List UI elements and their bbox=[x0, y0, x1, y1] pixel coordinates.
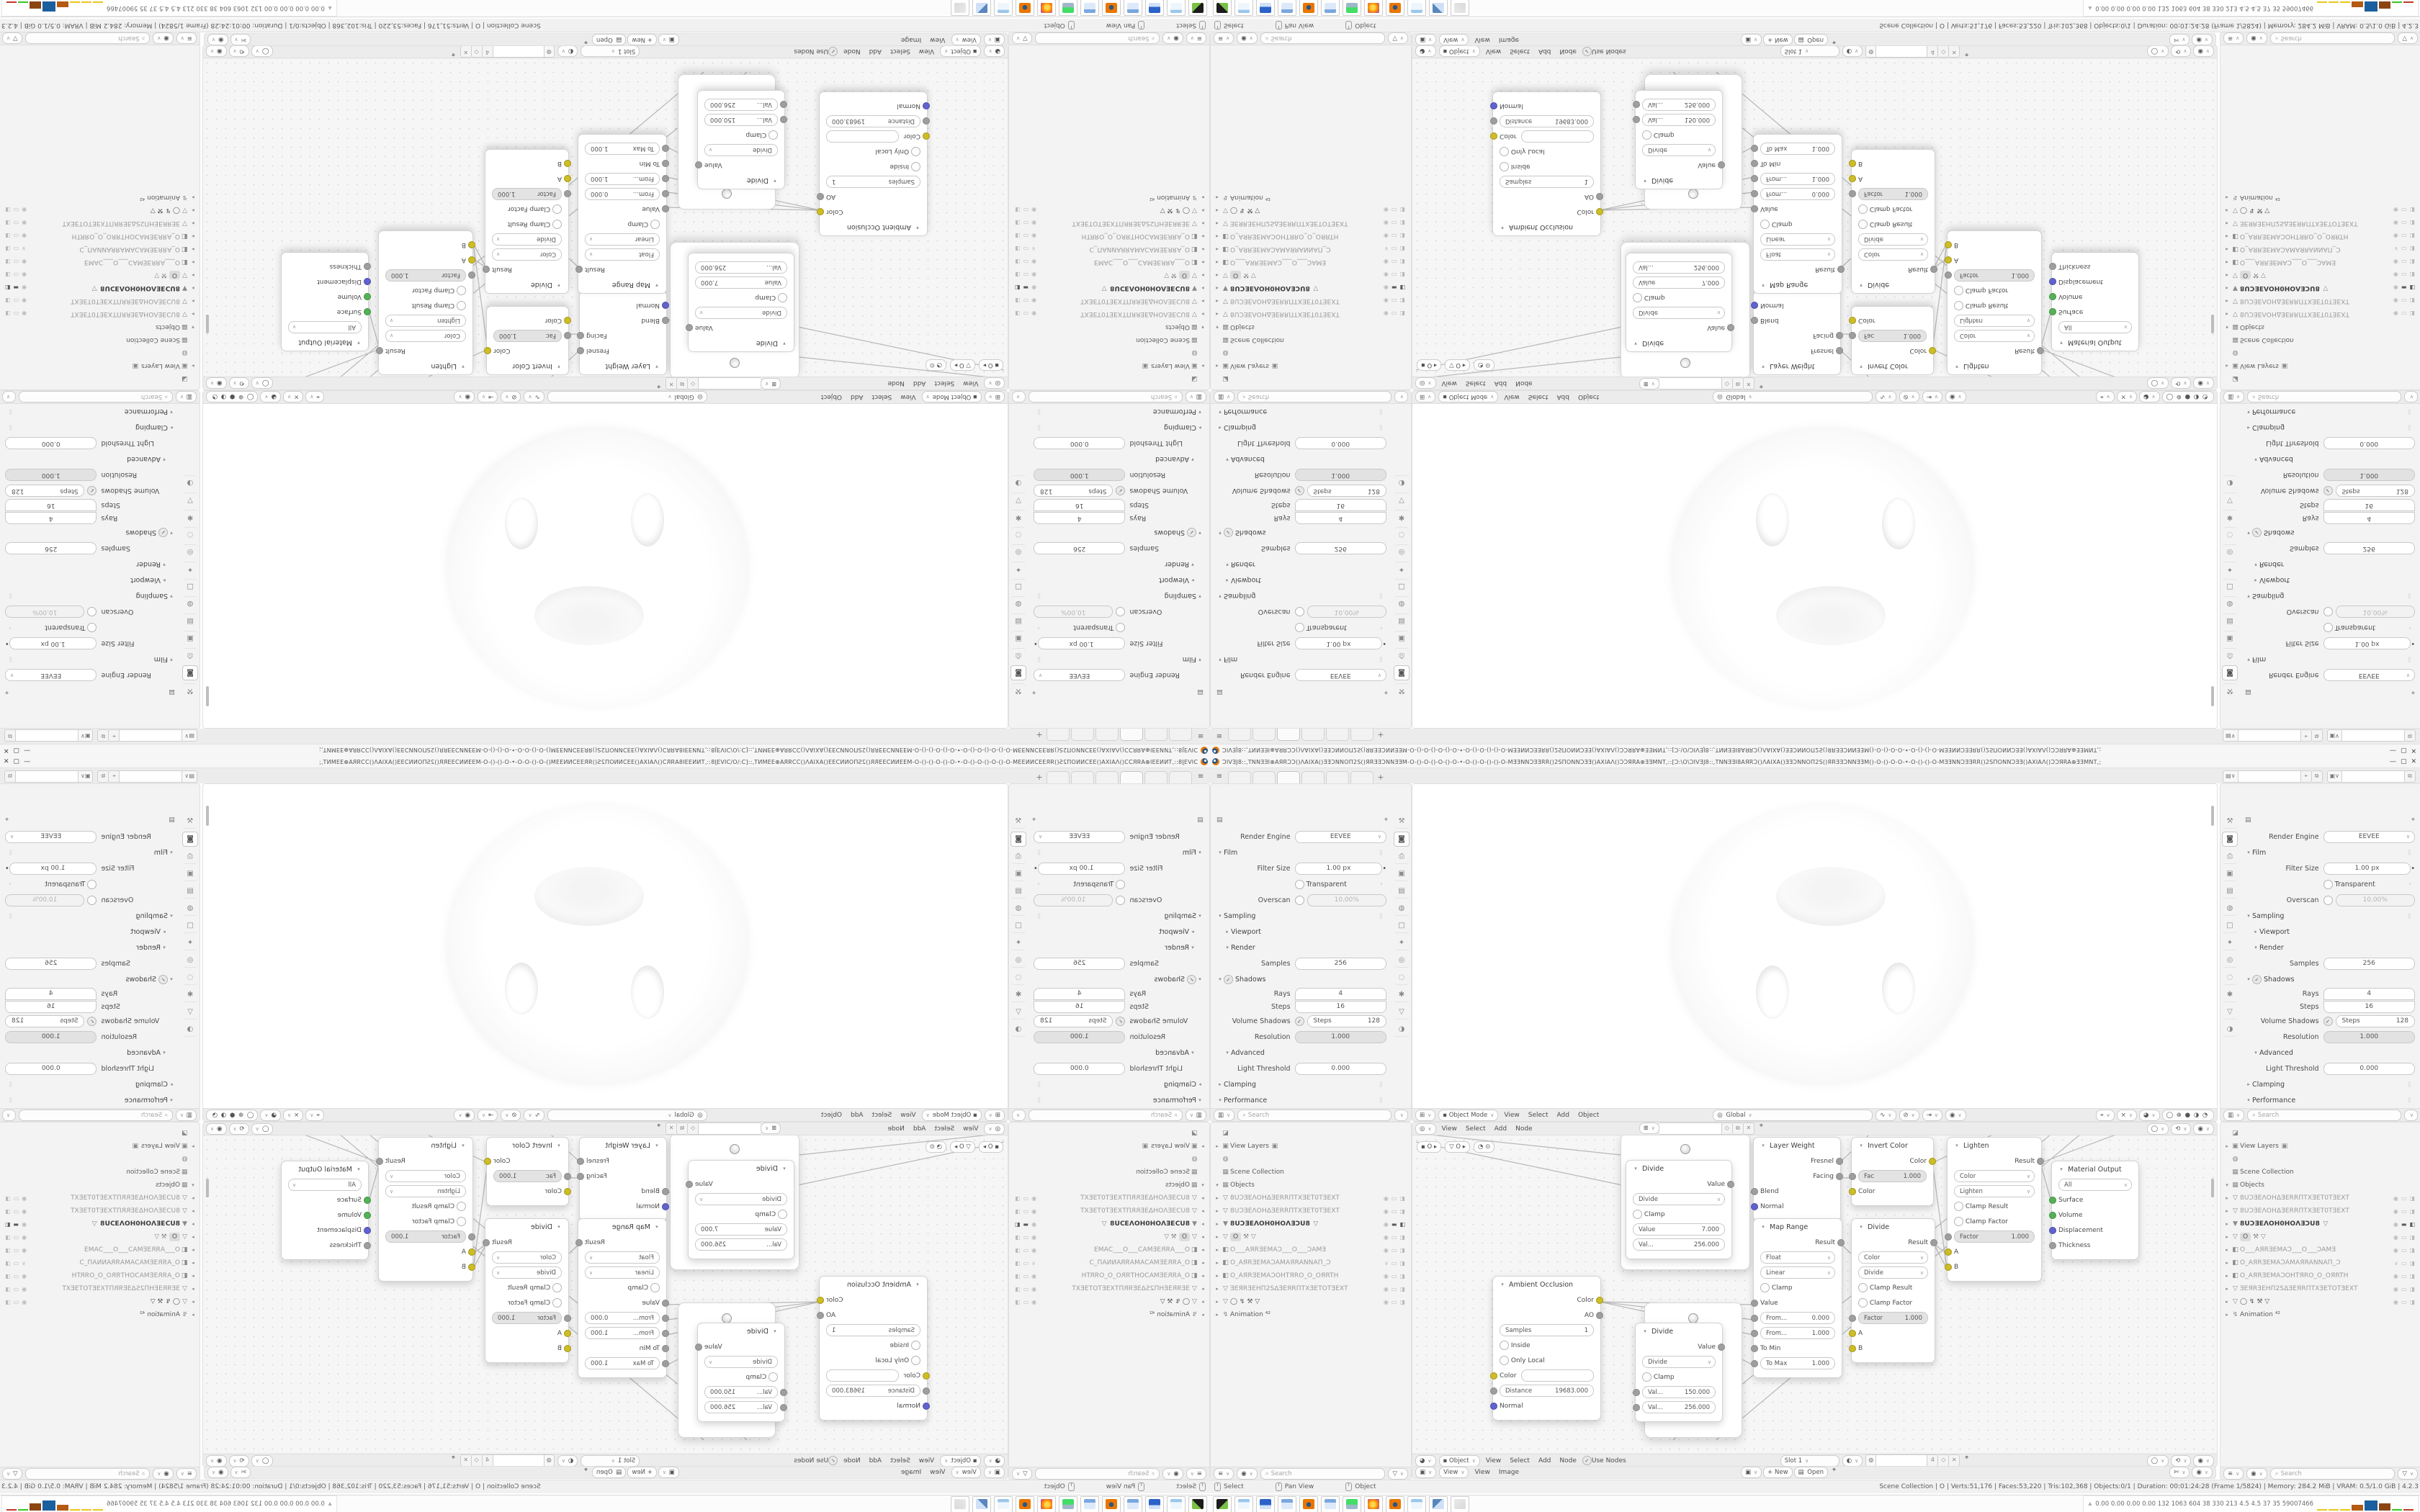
section-label[interactable]: Film bbox=[1183, 849, 1196, 857]
outliner-row[interactable]: ▸▣View Layers ▣ bbox=[2, 359, 197, 372]
node-dropdown[interactable]: Linear bbox=[585, 1266, 660, 1279]
node-menu-add[interactable]: Add bbox=[1536, 48, 1554, 55]
hide-icon[interactable]: ◉ bbox=[2393, 207, 2398, 214]
workspace-tab[interactable] bbox=[1228, 729, 1251, 741]
drive-app-icon[interactable] bbox=[1188, 0, 1207, 17]
solid-icon[interactable]: ● bbox=[2185, 1112, 2192, 1119]
outliner-row[interactable]: ▸▼8UƆƎEΛOH0HOΛƎƆU8 ▽◉▬◧ bbox=[1214, 282, 1408, 294]
input-socket[interactable] bbox=[2049, 294, 2056, 301]
docs-app-icon[interactable] bbox=[972, 1496, 991, 1512]
material-datablock[interactable]: ≣◇⧉✕ ⌖ bbox=[654, 377, 781, 390]
viewport-scrollbar[interactable] bbox=[2211, 686, 2214, 706]
node-value-field[interactable]: Distance19683.000 bbox=[826, 115, 920, 127]
outliner-search-input[interactable]: ⌕Search bbox=[1035, 33, 1160, 45]
expand-icon[interactable]: ▸ bbox=[1199, 1234, 1206, 1240]
node-checkbox[interactable] bbox=[1760, 1283, 1770, 1292]
data-icon[interactable]: ▽ bbox=[1394, 1005, 1409, 1020]
node-dropdown[interactable]: All bbox=[288, 1179, 362, 1191]
scene-icon[interactable]: ▤ bbox=[2223, 884, 2237, 899]
camera-icon[interactable]: ◨ bbox=[2409, 298, 2415, 305]
monitor-icon[interactable]: ▭ bbox=[1391, 246, 1397, 253]
node-canvas[interactable]: ▪ O ▸▽ O ▸◔ ⊙▾DivideValueDivide ClampVal… bbox=[1412, 1135, 2217, 1452]
outliner-filter-icon[interactable]: ▽ bbox=[2, 1468, 22, 1480]
camera-icon[interactable]: ◨ bbox=[2409, 1247, 2415, 1254]
workspace-tab[interactable] bbox=[1071, 729, 1094, 741]
node-material-output[interactable]: ▾Material OutputAllSurfaceVolumeDisplace… bbox=[2051, 252, 2139, 351]
display-mode-icon[interactable]: ≡ bbox=[2223, 33, 2244, 45]
output-socket[interactable] bbox=[483, 266, 490, 274]
monitor-icon[interactable]: ▭ bbox=[14, 1273, 19, 1279]
outline-icon[interactable]: ◯ bbox=[245, 1112, 254, 1119]
monitor-icon[interactable]: ▭ bbox=[1391, 1247, 1397, 1254]
node-checkbox[interactable] bbox=[650, 1283, 660, 1292]
node-checkbox[interactable] bbox=[552, 220, 562, 229]
display-mode-icon[interactable]: ≡ bbox=[1214, 33, 1234, 45]
output-socket[interactable] bbox=[1836, 333, 1843, 340]
node-editor-scrollbar[interactable] bbox=[2211, 1179, 2214, 1197]
section-label[interactable]: Clamping bbox=[1224, 1081, 1256, 1089]
expand-icon[interactable]: ▸ bbox=[189, 298, 197, 304]
monitor-icon[interactable]: ▭ bbox=[14, 233, 19, 240]
output-socket[interactable] bbox=[1836, 1173, 1843, 1180]
notepad-app-icon[interactable] bbox=[1234, 0, 1253, 17]
render-engine-dropdown[interactable]: EEVEE bbox=[1034, 670, 1125, 682]
unlink-button[interactable]: ✕ bbox=[1744, 377, 1754, 390]
output-socket[interactable] bbox=[1929, 348, 1936, 355]
monitor-icon[interactable]: ▭ bbox=[2401, 1208, 2407, 1215]
section-label[interactable]: Film bbox=[1224, 849, 1237, 857]
hide-icon[interactable]: ◉ bbox=[1031, 220, 1036, 227]
tool-icon[interactable]: ⚒ bbox=[1011, 814, 1026, 829]
expand-icon[interactable]: ▸ bbox=[1214, 272, 1221, 278]
input-socket[interactable] bbox=[1751, 191, 1758, 198]
expand-icon[interactable]: ▸ bbox=[189, 311, 197, 317]
node-value-field[interactable]: Fac1.000 bbox=[493, 1170, 562, 1182]
camera-icon[interactable]: ◨ bbox=[5, 298, 11, 305]
node-menu-node[interactable]: Node bbox=[841, 48, 864, 55]
node-checkbox[interactable] bbox=[911, 162, 920, 171]
node-dropdown[interactable]: Divide bbox=[1633, 1193, 1725, 1205]
workspace-tab[interactable] bbox=[1071, 771, 1094, 783]
node-value-field[interactable]: From...1.000 bbox=[585, 173, 660, 185]
constraint-icon[interactable]: ◌ bbox=[1011, 971, 1026, 985]
node-menu-view[interactable]: View bbox=[1439, 1125, 1460, 1133]
value-field[interactable]: 1.00 px bbox=[2323, 863, 2411, 875]
workspace-tab[interactable] bbox=[1047, 771, 1070, 783]
camera-icon[interactable]: ◨ bbox=[1399, 220, 1405, 227]
editor-type-icon[interactable]: ◕ bbox=[1415, 46, 1436, 58]
hide-icon[interactable]: ◉ bbox=[22, 207, 27, 214]
outliner-row[interactable]: ▸◧O_AЯRƎEMAƆAMAЯRANNAП_Ɔ∨▭◨ bbox=[1214, 1256, 1408, 1269]
properties-search-input[interactable]: ⌕Search bbox=[1237, 392, 1391, 403]
checkbox[interactable] bbox=[2323, 896, 2333, 905]
calculator-app-icon[interactable] bbox=[1124, 1496, 1142, 1512]
value-field[interactable]: 4 bbox=[1034, 513, 1125, 525]
checkbox[interactable] bbox=[1295, 608, 1304, 617]
node-checkbox[interactable] bbox=[1954, 1202, 1963, 1211]
node-divide[interactable]: ▾DivideValueDivide ClampVal...150.000Val… bbox=[1635, 1323, 1723, 1422]
outliner-mode-icon[interactable]: ◉ bbox=[1162, 1468, 1183, 1480]
outliner-row[interactable]: ▸▽O ⚒ ▽◉▭◨ bbox=[2223, 269, 2418, 282]
expand-icon[interactable]: ▸ bbox=[1199, 1273, 1206, 1279]
snap-mode-icon[interactable]: ⇥ bbox=[478, 392, 498, 403]
close-button[interactable]: ✕ bbox=[2411, 747, 2416, 754]
input-socket[interactable] bbox=[1751, 161, 1758, 168]
expand-icon[interactable]: ▸ bbox=[1214, 1143, 1221, 1149]
matball-icon[interactable]: ◐ bbox=[557, 1455, 578, 1467]
value-field[interactable]: 10.00% bbox=[5, 894, 84, 906]
scene-pin-button[interactable]: ⌖ bbox=[2301, 729, 2312, 742]
snap-circle-icon[interactable]: ◯ bbox=[2147, 378, 2169, 390]
node-value-field[interactable]: Samples1 bbox=[826, 176, 920, 188]
properties-options-icon[interactable] bbox=[2, 1110, 16, 1121]
value-field[interactable]: 10.00% bbox=[2336, 606, 2415, 618]
node-material-output[interactable]: ▾Material OutputAllSurfaceVolumeDisplace… bbox=[2051, 1161, 2139, 1260]
close-button[interactable]: ✕ bbox=[4, 747, 9, 754]
node-dropdown[interactable]: Divide bbox=[704, 1356, 778, 1368]
expand-icon[interactable]: ▸ bbox=[1214, 1312, 1221, 1318]
expand-icon[interactable]: ▸ bbox=[1199, 298, 1206, 304]
render-icon[interactable]: ◙ bbox=[2222, 832, 2238, 847]
transform-orientation-dropdown[interactable]: ◎ Global bbox=[1713, 392, 1873, 403]
pin-icon[interactable]: ⌖ bbox=[654, 1122, 665, 1135]
object-icon[interactable]: □ bbox=[1011, 919, 1026, 933]
camera-icon[interactable]: ◧ bbox=[1399, 285, 1405, 292]
node-dropdown[interactable]: Divide bbox=[704, 144, 778, 156]
pivot-icon[interactable]: ◉ bbox=[454, 392, 475, 403]
node-dropdown[interactable]: All bbox=[2058, 321, 2132, 333]
input-socket[interactable] bbox=[1490, 118, 1497, 125]
outliner-row[interactable]: ▸◧O_AЯRƎEMAƆAMAЯRANNAП_Ɔ∨▭◨ bbox=[1012, 1256, 1206, 1269]
animate-dot-icon[interactable]: • bbox=[1034, 865, 1038, 873]
outliner-row[interactable]: ▸▽O ⚒ ▽◉▭◨ bbox=[1012, 269, 1206, 282]
overlay-icon[interactable]: ⨯ bbox=[2117, 1110, 2137, 1121]
expand-icon[interactable]: ▸ bbox=[189, 220, 197, 226]
camera-icon[interactable]: ◨ bbox=[1399, 259, 1405, 266]
outliner-row[interactable]: ▾▦Objects bbox=[1012, 1179, 1206, 1192]
camera-icon[interactable]: ◨ bbox=[5, 1273, 11, 1279]
expand-icon[interactable]: ▸ bbox=[1199, 1286, 1206, 1292]
expand-icon[interactable]: ▾ bbox=[189, 1182, 197, 1188]
node-dropdown[interactable]: Divide bbox=[695, 307, 787, 319]
pivot-icon[interactable]: ◉ bbox=[1945, 1110, 1966, 1121]
shadows-checkbox[interactable]: ✓ bbox=[158, 975, 168, 984]
outliner-row[interactable]: ▸▣View Layers ▣ bbox=[1214, 1140, 1408, 1153]
outliner-row[interactable]: ▸◧O___AЯRƎEMAƆ___O___ƆAMƎ◉▭◨ bbox=[2, 256, 197, 269]
checkbox[interactable]: ✓ bbox=[1116, 487, 1125, 496]
expand-icon[interactable]: ▸ bbox=[1199, 220, 1206, 226]
node-value-field[interactable]: From...1.000 bbox=[1760, 173, 1835, 185]
overlay-icon[interactable]: ◉ bbox=[206, 46, 227, 58]
outliner-row[interactable]: ▸▣View Layers ▣ bbox=[2223, 1140, 2418, 1153]
monitor-icon[interactable]: ▬ bbox=[1391, 285, 1397, 292]
value-field[interactable]: 0.000 bbox=[1295, 438, 1386, 450]
expand-icon[interactable]: ▸ bbox=[1199, 233, 1206, 239]
output-socket[interactable] bbox=[1727, 325, 1734, 332]
checkbox[interactable] bbox=[1295, 880, 1304, 889]
node-value-field[interactable]: Val...256.000 bbox=[695, 1238, 787, 1251]
node-checkbox[interactable] bbox=[1642, 1372, 1652, 1382]
outliner-row[interactable]: ▸◧O___AЯRƎEMAƆ___O___ƆAMƎ◉▭◨ bbox=[2223, 256, 2418, 269]
material-icon[interactable]: ◑ bbox=[1011, 475, 1026, 490]
output-socket[interactable] bbox=[1929, 1158, 1936, 1165]
input-socket[interactable] bbox=[1751, 1203, 1758, 1210]
expand-icon[interactable]: ▸ bbox=[1214, 259, 1221, 265]
editor-type-icon[interactable]: ▣ bbox=[1415, 34, 1436, 45]
material-name-field[interactable] bbox=[698, 377, 761, 390]
docs-app-icon[interactable] bbox=[1429, 1496, 1448, 1512]
outliner-search-input[interactable]: ⌕Search bbox=[1260, 33, 1386, 45]
hide-icon[interactable]: ◉ bbox=[1384, 1234, 1389, 1241]
close-button[interactable]: ✕ bbox=[2411, 758, 2416, 765]
image-menu-image[interactable]: Image bbox=[898, 1469, 924, 1476]
node-divide[interactable]: ▾DivideValueDivide ClampVal...150.000Val… bbox=[697, 90, 785, 189]
section-label[interactable]: Sampling bbox=[136, 593, 168, 600]
outliner-row[interactable]: ◍ bbox=[1012, 346, 1206, 359]
outliner-row[interactable]: ▸▽◯ ↯ ⚒ ▽◉▭◨ bbox=[1012, 204, 1206, 217]
expand-icon[interactable]: ▸ bbox=[2223, 207, 2231, 213]
viewport-menu-view[interactable]: View bbox=[1501, 1112, 1522, 1119]
node-dropdown[interactable]: Lighten bbox=[1954, 1185, 2035, 1197]
display-mode-icon[interactable]: ≡ bbox=[1186, 33, 1206, 45]
outliner-row[interactable]: ▾▦Objects bbox=[1214, 1179, 1408, 1192]
hide-icon[interactable]: ◉ bbox=[22, 1234, 27, 1241]
hide-icon[interactable]: ◉ bbox=[22, 1286, 27, 1292]
section-label[interactable]: Viewport bbox=[1231, 928, 1261, 936]
unlink-button[interactable]: ✕ bbox=[1949, 1454, 1960, 1467]
monitor-icon[interactable]: ▭ bbox=[2401, 298, 2407, 305]
object-mode-dropdown[interactable]: ▪ Object Mode bbox=[922, 1110, 982, 1121]
viewport-menu-add[interactable]: Add bbox=[1554, 1112, 1572, 1119]
data-icon[interactable]: ▽ bbox=[183, 492, 197, 507]
notepad-app-icon[interactable] bbox=[1167, 0, 1186, 17]
hide-icon[interactable]: ◉ bbox=[1031, 233, 1036, 240]
xray-icon[interactable]: ◕ bbox=[2139, 1110, 2160, 1121]
monitor-icon[interactable]: ▭ bbox=[14, 1286, 19, 1292]
node-value-field[interactable]: From...1.000 bbox=[585, 1327, 660, 1339]
outliner-search-input[interactable]: ⌕Search bbox=[2270, 33, 2396, 45]
image-icon[interactable]: ▣ bbox=[1741, 34, 1762, 45]
outliner-search-input[interactable]: ⌕Search bbox=[25, 33, 151, 45]
section-label[interactable]: Shadows bbox=[2262, 529, 2294, 537]
monitor-icon[interactable]: ▭ bbox=[2401, 311, 2407, 318]
render-engine-dropdown[interactable]: EEVEE bbox=[1295, 831, 1386, 843]
animate-dot-icon[interactable]: • bbox=[1380, 881, 1384, 887]
node-checkbox[interactable] bbox=[1500, 1341, 1509, 1350]
expand-icon[interactable]: ▸ bbox=[2223, 311, 2231, 317]
maximize-button[interactable]: ▢ bbox=[14, 747, 20, 754]
outliner-row[interactable]: ▸◧O_AЯRƎEMAƆOHTЯRO_O_OЯRTH◉▭◨ bbox=[2, 1269, 197, 1282]
outliner-search-input[interactable]: ⌕Search bbox=[2270, 1468, 2396, 1480]
expand-icon[interactable]: ▸ bbox=[2223, 1195, 2231, 1201]
outliner-row[interactable]: ▦Scene Collection bbox=[2, 333, 197, 346]
output-socket[interactable] bbox=[1836, 348, 1843, 355]
xray-icon[interactable]: ◕ bbox=[260, 1110, 281, 1121]
scene-selector[interactable]: ▤∨⌖⧉ bbox=[97, 771, 197, 782]
input-socket[interactable] bbox=[564, 1173, 571, 1180]
snap-mode-icon[interactable]: ⇥ bbox=[1922, 392, 1942, 403]
input-socket[interactable] bbox=[364, 309, 371, 316]
node-lighten[interactable]: ▾LightenResultColorLighten Clamp Result … bbox=[1947, 230, 2042, 375]
outliner-row[interactable]: ▸▽8UƆƎEΛOHΔƎERRПTXƎET0TƎEXT◉▭◨ bbox=[1214, 1205, 1408, 1218]
input-socket[interactable] bbox=[1945, 272, 1952, 279]
object-icon[interactable]: □ bbox=[183, 579, 197, 593]
scene-pin-button[interactable]: ⌖ bbox=[2301, 770, 2312, 783]
collapsed-panel-chip[interactable]: ▽ O ▸ bbox=[950, 359, 975, 371]
node-canvas[interactable]: ▪ O ▸▽ O ▸◔ ⊙▾DivideValueDivide ClampVal… bbox=[203, 1135, 1008, 1452]
world-icon[interactable]: ◍ bbox=[183, 901, 197, 916]
outliner-row[interactable]: ▸▽ƎEЯRƎEHП2SΔƎEЯRПTXƎETOTƎEXT◉▭◨ bbox=[1214, 217, 1408, 230]
expand-icon[interactable]: ▸ bbox=[1214, 194, 1221, 200]
camera-icon[interactable]: ◨ bbox=[2409, 311, 2415, 318]
outliner-row[interactable]: ▸◧O___AЯRƎEMAƆ___O___ƆAMƎ◉▭◨ bbox=[1012, 1243, 1206, 1256]
node-checkbox[interactable] bbox=[1858, 1298, 1868, 1308]
floppy64-app-icon[interactable] bbox=[1256, 1496, 1275, 1512]
hide-icon[interactable]: ◉ bbox=[2393, 1208, 2398, 1215]
camera-icon[interactable]: ◨ bbox=[1399, 1260, 1405, 1266]
outliner-mode-icon[interactable]: ◉ bbox=[2246, 1468, 2267, 1480]
solid-icon[interactable]: ● bbox=[2185, 394, 2192, 401]
shadows-checkbox[interactable]: ✓ bbox=[2252, 975, 2262, 984]
monitor-icon[interactable]: ▭ bbox=[14, 1208, 19, 1215]
monitor-app-icon[interactable] bbox=[1059, 1496, 1077, 1512]
monitor-icon[interactable]: ▭ bbox=[14, 207, 19, 214]
checkbox[interactable]: ✓ bbox=[2323, 487, 2333, 496]
blender-app-icon[interactable] bbox=[1016, 0, 1034, 17]
monitor-icon[interactable]: ▭ bbox=[2401, 220, 2407, 227]
section-label[interactable]: Sampling bbox=[2252, 912, 2284, 920]
expand-icon[interactable]: ▸ bbox=[2223, 1299, 2231, 1305]
camera-icon[interactable]: ◧ bbox=[5, 1221, 11, 1228]
monitor-icon[interactable]: ▭ bbox=[1023, 1299, 1029, 1305]
monitor-icon[interactable]: ▭ bbox=[1391, 233, 1397, 240]
add-workspace-button[interactable]: + bbox=[1375, 772, 1386, 783]
node-value-field[interactable]: Val...150.000 bbox=[704, 114, 778, 126]
properties-filter-icon[interactable]: ▥ bbox=[176, 1110, 197, 1121]
use-nodes-toggle[interactable]: ✓Use Nodes bbox=[1582, 1456, 1626, 1465]
output-socket[interactable] bbox=[817, 1312, 824, 1319]
input-socket[interactable] bbox=[1945, 257, 1952, 264]
section-label[interactable]: Render bbox=[136, 944, 161, 952]
expand-icon[interactable]: ▸ bbox=[189, 1221, 197, 1227]
hide-icon[interactable]: ◉ bbox=[1031, 1247, 1036, 1254]
input-socket[interactable] bbox=[780, 1404, 787, 1411]
input-socket[interactable] bbox=[1751, 1330, 1758, 1337]
expand-icon[interactable]: ▸ bbox=[189, 207, 197, 213]
scene-copy-button[interactable]: ⧉ bbox=[2312, 770, 2323, 783]
camera-icon[interactable]: ◨ bbox=[1399, 1208, 1405, 1215]
node-value-field[interactable]: Val...256.000 bbox=[704, 1401, 778, 1413]
color-swatch-field[interactable] bbox=[826, 130, 900, 143]
workspace-tab[interactable] bbox=[1169, 729, 1192, 741]
camera-icon[interactable]: ◨ bbox=[1399, 1234, 1405, 1241]
outliner-row[interactable]: ▸◧O_AЯRƎEMAƆAMAЯRANNAП_Ɔ∨▭◨ bbox=[1214, 243, 1408, 256]
expand-icon[interactable]: ▸ bbox=[1214, 363, 1221, 369]
outliner-row[interactable]: ▸◧O_AЯRƎEMAƆAMAЯRANNAП_Ɔ∨▭◨ bbox=[2223, 1256, 2418, 1269]
shader-mode-dropdown[interactable]: ▪ Object bbox=[940, 46, 981, 58]
hide-icon[interactable]: ◉ bbox=[22, 259, 27, 266]
object-icon[interactable]: □ bbox=[1394, 919, 1409, 933]
outliner-row[interactable]: ▸▽8UƆƎEΛOHΔƎERRПTXƎET0TƎEXT◉▭◨ bbox=[1012, 1192, 1206, 1205]
key-value-field[interactable]: Steps128 bbox=[1307, 485, 1386, 498]
hide-icon[interactable]: ◉ bbox=[1384, 233, 1389, 240]
collapsed-panel-chip[interactable]: ◔ ⊙ bbox=[1474, 359, 1494, 371]
firefox-app-icon[interactable] bbox=[1364, 0, 1383, 17]
image-menu-view[interactable]: View bbox=[927, 1469, 948, 1476]
hide-icon[interactable]: ◉ bbox=[1384, 1247, 1389, 1254]
camera-icon[interactable]: ◧ bbox=[2409, 285, 2415, 292]
value-field[interactable]: 10.00% bbox=[1034, 606, 1113, 618]
outliner-row[interactable]: ▸▽8UƆƎEΛOHΔƎERRПTXƎET0TƎEXT◉▭◨ bbox=[2, 1205, 197, 1218]
material-datablock[interactable]: ◍4◇✕ ⌖ bbox=[449, 1454, 555, 1467]
node-checkbox[interactable] bbox=[911, 147, 920, 156]
input-socket[interactable] bbox=[1849, 318, 1856, 325]
node-dropdown[interactable]: Color bbox=[385, 330, 466, 342]
expand-icon[interactable]: ▸ bbox=[1214, 1247, 1221, 1253]
monitor-icon[interactable]: ▭ bbox=[14, 1247, 19, 1254]
pin-icon[interactable]: ⌖ bbox=[1960, 1454, 1971, 1467]
blender-app-icon[interactable] bbox=[1102, 1496, 1121, 1512]
value-field[interactable]: 10.00% bbox=[1307, 894, 1386, 906]
calculator-app-icon[interactable] bbox=[1321, 0, 1340, 17]
outliner-search-input[interactable]: ⌕Search bbox=[1260, 1468, 1386, 1480]
section-label[interactable]: Render bbox=[2259, 944, 2284, 952]
overlay-icon[interactable]: ⨯ bbox=[283, 392, 303, 403]
animate-dot-icon[interactable]: • bbox=[8, 625, 12, 631]
outliner-row[interactable]: ▸▽◯ ↯ ⚒ ▽◉▭◨ bbox=[1214, 204, 1408, 217]
pin-icon[interactable]: ⌖ bbox=[449, 1454, 460, 1467]
overlay-icon[interactable]: ◉ bbox=[207, 34, 228, 45]
notepad-app-icon[interactable] bbox=[1407, 0, 1426, 17]
maximize-button[interactable]: ▢ bbox=[2401, 747, 2407, 754]
hide-icon[interactable]: ◉ bbox=[1031, 1299, 1036, 1305]
snap-toggle-icon[interactable]: ⊘ bbox=[1899, 392, 1919, 403]
snap-circle-icon[interactable]: ◯ bbox=[251, 1123, 274, 1135]
shader-mode-dropdown[interactable]: ▪ Object bbox=[1439, 46, 1480, 58]
input-socket[interactable] bbox=[1849, 191, 1856, 198]
node-checkbox[interactable] bbox=[552, 204, 562, 214]
camera-icon[interactable]: ◨ bbox=[2409, 259, 2415, 266]
scene-pin-button[interactable]: ⌖ bbox=[108, 770, 119, 783]
camera-icon[interactable]: ◨ bbox=[1015, 246, 1021, 253]
node-value-field[interactable]: Samples1 bbox=[1500, 1324, 1594, 1336]
properties-search-input[interactable]: ⌕Search bbox=[1237, 1110, 1391, 1121]
outliner-row[interactable]: ▾▦Objects bbox=[2, 1179, 197, 1192]
outliner-filter-icon[interactable]: ▽ bbox=[2398, 33, 2418, 45]
viewlayer-copy-button[interactable]: ⧉ bbox=[4, 770, 15, 783]
node-checkbox[interactable] bbox=[1858, 220, 1868, 229]
section-label[interactable]: Advanced bbox=[1231, 456, 1265, 464]
outliner-row[interactable]: ◍ bbox=[2223, 346, 2418, 359]
node-invert-color[interactable]: ▾Invert ColorColorFac1.000Color bbox=[486, 1137, 569, 1206]
node-dropdown[interactable]: Color bbox=[492, 1251, 562, 1264]
node-menu-node[interactable]: Node bbox=[1512, 380, 1536, 387]
physics-icon[interactable]: ◎ bbox=[1011, 544, 1026, 559]
render-engine-dropdown[interactable]: EEVEE bbox=[1295, 670, 1386, 682]
scene-selector[interactable]: ▤∨⌖⧉ bbox=[2223, 771, 2322, 782]
output-socket[interactable] bbox=[577, 1158, 584, 1165]
output-socket[interactable] bbox=[686, 1181, 693, 1188]
outliner-row[interactable]: ▸▣View Layers ▣ bbox=[1012, 1140, 1206, 1153]
outliner-row[interactable]: ▦Scene Collection bbox=[2223, 1166, 2418, 1179]
new-image-button[interactable]: + New bbox=[1763, 34, 1792, 45]
viewlayer-icon[interactable]: ▣ bbox=[1011, 631, 1026, 645]
node-checkbox[interactable] bbox=[1954, 1217, 1963, 1226]
hide-icon[interactable]: ◉ bbox=[1384, 1299, 1389, 1305]
node-editor-scrollbar[interactable] bbox=[206, 1179, 209, 1197]
monitor-icon[interactable]: ▭ bbox=[2401, 246, 2407, 253]
input-socket[interactable] bbox=[662, 302, 669, 310]
